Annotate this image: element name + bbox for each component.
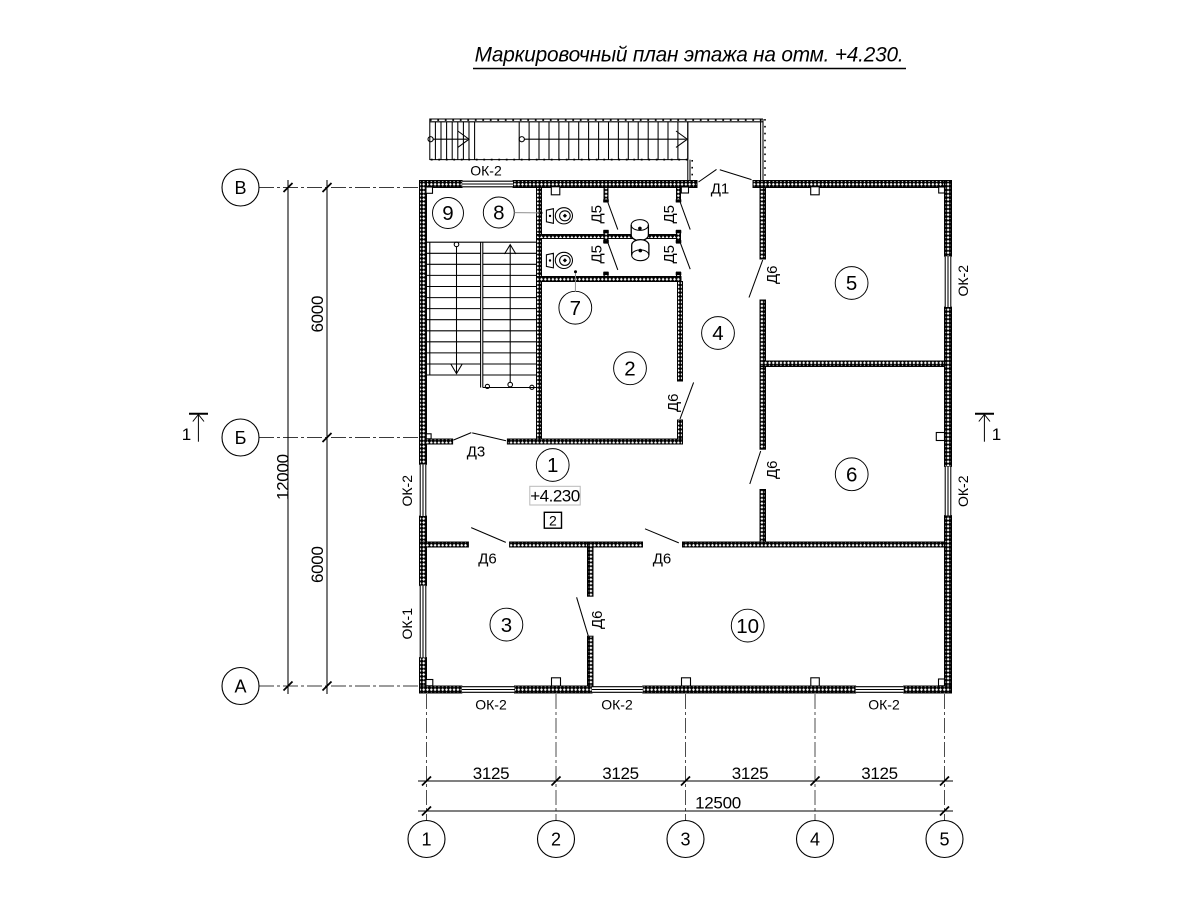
svg-text:Д6: Д6 [653, 551, 672, 568]
svg-text:Д6: Д6 [478, 551, 497, 568]
svg-text:+4.230: +4.230 [530, 486, 580, 505]
svg-text:ОК-2: ОК-2 [475, 697, 507, 713]
svg-text:2: 2 [551, 830, 561, 850]
svg-text:ОК-2: ОК-2 [470, 163, 502, 179]
svg-text:12500: 12500 [695, 794, 741, 813]
svg-text:1: 1 [421, 830, 431, 850]
svg-text:Д5: Д5 [589, 205, 606, 224]
svg-text:Б: Б [235, 428, 247, 448]
svg-text:Д6: Д6 [589, 610, 606, 629]
svg-text:Д6: Д6 [764, 460, 781, 479]
svg-text:Д6: Д6 [764, 265, 781, 284]
svg-text:ОК-2: ОК-2 [601, 697, 633, 713]
svg-text:6000: 6000 [308, 296, 327, 333]
svg-text:А: А [234, 677, 246, 697]
svg-text:2: 2 [624, 358, 635, 381]
svg-text:Д3: Д3 [467, 444, 486, 461]
svg-text:2: 2 [549, 512, 557, 528]
svg-text:3125: 3125 [473, 764, 510, 783]
svg-text:ОК-2: ОК-2 [955, 265, 971, 297]
svg-text:10: 10 [736, 615, 759, 638]
svg-text:3: 3 [501, 614, 512, 637]
svg-text:6000: 6000 [308, 546, 327, 583]
svg-text:Д1: Д1 [711, 181, 730, 198]
svg-text:1: 1 [182, 425, 191, 444]
svg-text:ОК-2: ОК-2 [399, 475, 415, 507]
svg-text:1: 1 [992, 425, 1001, 444]
svg-text:ОК-1: ОК-1 [399, 608, 415, 640]
svg-text:5: 5 [846, 272, 857, 295]
svg-text:3: 3 [680, 830, 690, 850]
svg-text:3125: 3125 [602, 764, 639, 783]
svg-text:Д5: Д5 [589, 245, 606, 264]
svg-text:7: 7 [570, 297, 581, 320]
svg-text:9: 9 [442, 202, 453, 225]
svg-text:5: 5 [939, 830, 949, 850]
svg-text:1: 1 [547, 454, 558, 477]
svg-text:3125: 3125 [732, 764, 769, 783]
svg-text:Д5: Д5 [661, 205, 678, 224]
svg-text:4: 4 [810, 830, 820, 850]
svg-text:8: 8 [493, 202, 504, 225]
svg-text:В: В [234, 178, 246, 198]
svg-text:Д6: Д6 [665, 393, 682, 412]
svg-text:12000: 12000 [274, 454, 293, 500]
svg-text:4: 4 [712, 322, 723, 345]
svg-text:ОК-2: ОК-2 [955, 475, 971, 507]
svg-text:6: 6 [846, 464, 857, 487]
svg-text:Маркировочный план этажа на от: Маркировочный план этажа на отм. +4.230. [475, 44, 904, 67]
svg-text:ОК-2: ОК-2 [868, 697, 900, 713]
svg-text:3125: 3125 [861, 764, 898, 783]
svg-text:Д5: Д5 [661, 245, 678, 264]
